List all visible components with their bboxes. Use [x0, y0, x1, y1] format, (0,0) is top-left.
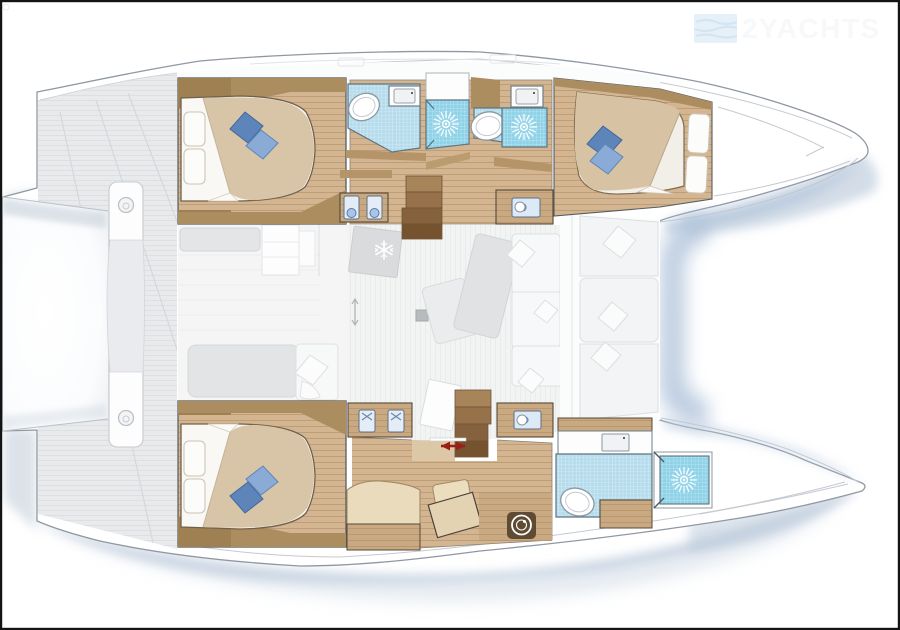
svg-text:2YACHTS: 2YACHTS — [742, 13, 881, 44]
